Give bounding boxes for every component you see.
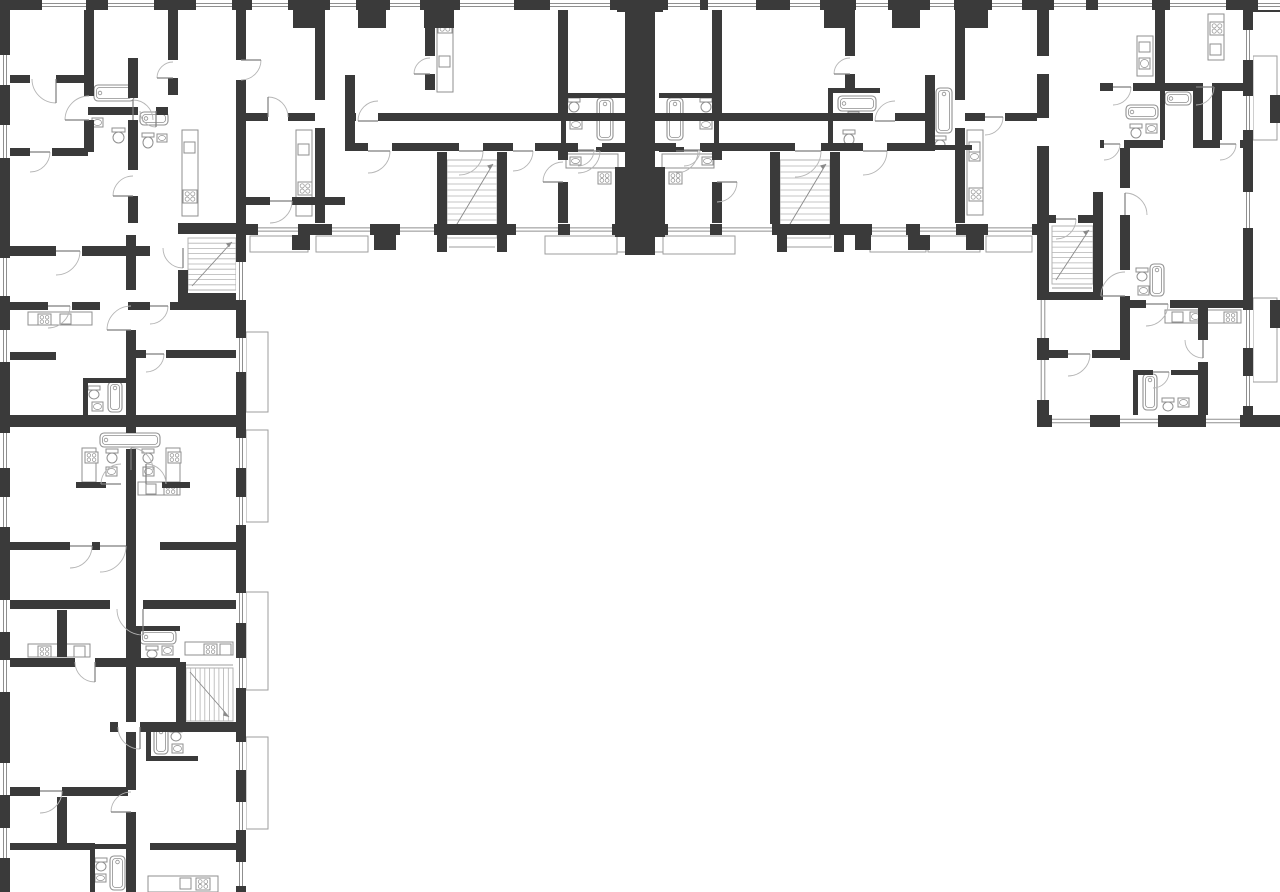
wall <box>483 143 513 151</box>
wall <box>1218 83 1253 91</box>
wall <box>236 128 246 223</box>
toilet-tank <box>843 130 855 134</box>
wall <box>1270 300 1280 328</box>
wall <box>1193 140 1220 148</box>
window-opening <box>1243 96 1253 130</box>
wall <box>892 0 920 28</box>
toilet-tank <box>934 136 946 140</box>
window-opening <box>920 224 956 235</box>
wall <box>236 80 246 128</box>
wall <box>10 302 48 310</box>
wall <box>126 492 136 560</box>
partition-wall <box>828 88 880 93</box>
wall <box>315 0 325 100</box>
window-opening <box>1243 310 1253 348</box>
wall <box>558 151 568 160</box>
wall <box>1124 140 1163 148</box>
stove <box>196 878 210 890</box>
appliance-square <box>220 644 231 655</box>
window-opening <box>0 330 10 362</box>
partition-wall <box>828 88 833 148</box>
wall <box>625 237 655 255</box>
appliance-square <box>74 646 85 657</box>
toilet-bowl <box>701 102 711 112</box>
wall <box>437 224 447 252</box>
wall <box>128 196 138 223</box>
wall <box>126 667 136 722</box>
partition-wall <box>83 378 88 415</box>
wall <box>1037 74 1049 118</box>
partition-wall <box>714 93 719 152</box>
window-opening <box>236 497 246 525</box>
wall <box>1198 308 1208 340</box>
wall <box>965 113 985 121</box>
toilet-tank <box>1136 268 1148 272</box>
window-opening <box>1170 0 1226 10</box>
stove <box>969 188 983 201</box>
floor-plan-drawing <box>0 0 1280 892</box>
wall <box>245 113 268 121</box>
wall <box>1120 300 1146 308</box>
window-opening <box>550 0 610 10</box>
wall <box>777 224 787 252</box>
wall <box>72 302 100 310</box>
window-opening <box>1098 0 1152 10</box>
wall <box>110 722 118 732</box>
wall <box>168 78 178 95</box>
wall <box>845 0 855 56</box>
partition-wall <box>930 145 972 150</box>
window-opening <box>1052 415 1090 427</box>
window-opening <box>390 0 420 10</box>
window-opening <box>790 0 820 10</box>
wall <box>292 235 310 250</box>
stove <box>1210 22 1224 35</box>
toilet-bowl <box>89 390 99 399</box>
stove <box>669 172 682 184</box>
window-opening <box>0 55 10 85</box>
wall <box>88 107 138 115</box>
window-opening <box>1243 192 1253 228</box>
window-opening <box>400 224 434 235</box>
wall <box>126 732 136 790</box>
wall <box>1049 350 1068 358</box>
window-opening <box>708 0 756 10</box>
toilet-bowl <box>1131 128 1141 138</box>
wall <box>84 120 94 152</box>
window-opening <box>1037 360 1049 400</box>
appliance-square <box>1139 42 1150 52</box>
window-opening <box>570 224 612 235</box>
wall <box>170 302 236 310</box>
wall <box>1005 113 1037 121</box>
partition-wall <box>1160 88 1165 140</box>
wall <box>126 560 136 658</box>
window-opening <box>0 258 10 296</box>
partition-wall <box>702 147 719 152</box>
window-opening <box>856 0 888 10</box>
toilet-tank <box>88 386 100 390</box>
window-opening <box>992 0 1022 10</box>
window-opening <box>236 593 246 623</box>
wall <box>1093 192 1103 292</box>
wall <box>126 427 136 433</box>
wall <box>128 302 150 310</box>
window-opening <box>252 0 288 10</box>
wall <box>1037 292 1103 300</box>
window-opening <box>236 438 246 468</box>
partition-wall <box>659 93 719 98</box>
partition-wall <box>561 93 625 98</box>
wall <box>92 542 100 550</box>
partition-wall <box>561 147 578 152</box>
wall <box>558 182 568 223</box>
stove <box>38 646 51 657</box>
partition-wall <box>146 756 198 761</box>
wall <box>0 843 95 850</box>
wall <box>617 0 663 12</box>
toilet-bowl <box>569 102 579 112</box>
window-opening <box>1258 0 1280 10</box>
wall <box>821 143 863 151</box>
wall <box>166 350 246 358</box>
partition-wall <box>930 85 935 150</box>
wall <box>1240 140 1253 148</box>
window-opening <box>668 224 710 235</box>
window-opening <box>236 862 246 886</box>
wall <box>908 235 930 250</box>
wall <box>0 415 246 427</box>
wall <box>955 0 965 100</box>
window-opening <box>332 224 370 235</box>
stove <box>298 182 312 195</box>
wall <box>126 235 136 290</box>
wall <box>236 197 270 205</box>
window-opening <box>930 0 954 10</box>
partition-wall <box>90 844 95 892</box>
wall <box>1049 215 1056 223</box>
floor-plan-canvas <box>0 0 1280 892</box>
stove <box>183 190 197 203</box>
wall <box>392 143 459 151</box>
wall <box>1120 148 1130 188</box>
window-opening <box>0 660 10 692</box>
wall <box>615 167 665 237</box>
wall <box>52 148 88 156</box>
window-opening <box>236 658 246 688</box>
window-opening <box>1037 300 1049 338</box>
window-opening <box>258 224 298 235</box>
wall <box>10 600 110 609</box>
window-opening <box>330 0 356 10</box>
window-opening <box>236 742 246 770</box>
wall <box>437 152 447 224</box>
window-opening <box>0 600 10 632</box>
wall <box>834 224 844 252</box>
wall <box>712 151 722 160</box>
wall <box>374 235 396 250</box>
stove <box>38 314 51 325</box>
window-opening <box>668 0 700 10</box>
toilet-bowl <box>96 862 106 871</box>
window-opening <box>236 802 246 830</box>
appliance-square <box>1172 312 1183 322</box>
wall <box>1120 215 1130 270</box>
window-opening <box>0 497 10 527</box>
partition-wall <box>90 844 136 849</box>
window-opening <box>42 0 86 10</box>
window-opening <box>0 125 10 158</box>
appliance-square <box>184 142 195 153</box>
window-opening <box>1054 0 1086 10</box>
partition-wall <box>146 724 151 760</box>
wall <box>425 0 435 56</box>
wall <box>955 128 965 223</box>
wall <box>57 610 67 657</box>
appliance-square <box>146 484 156 494</box>
wall <box>128 58 138 98</box>
wall <box>1155 0 1165 83</box>
toilet-tank <box>112 128 125 132</box>
toilet-bowl <box>1163 402 1173 411</box>
window-opening <box>1243 30 1253 60</box>
window-opening <box>516 224 558 235</box>
wall <box>178 223 246 234</box>
stove <box>598 172 611 184</box>
wall <box>1100 83 1113 91</box>
wall <box>82 246 150 256</box>
wall <box>143 600 236 609</box>
wall <box>0 542 70 550</box>
wall <box>830 152 840 224</box>
appliance-square <box>298 144 309 155</box>
window-opening <box>0 433 10 468</box>
window-opening <box>236 338 246 372</box>
wall <box>1270 95 1280 123</box>
toilet-tank <box>95 858 107 862</box>
wall <box>845 74 855 90</box>
wall <box>497 224 507 252</box>
wall <box>62 787 128 796</box>
stove <box>1224 312 1237 323</box>
toilet-bowl <box>113 132 124 143</box>
toilet-tank <box>568 98 580 102</box>
stove <box>204 644 217 655</box>
wall <box>1193 83 1203 140</box>
wall <box>345 143 368 151</box>
window-opening <box>196 0 232 10</box>
partition-wall <box>1133 370 1138 415</box>
wall <box>712 182 722 223</box>
wall <box>0 246 56 256</box>
wall <box>1092 350 1130 358</box>
window-opening <box>872 224 906 235</box>
wall <box>126 812 136 892</box>
wall <box>128 120 138 170</box>
partition-wall <box>83 378 133 383</box>
wall <box>168 0 178 60</box>
wall <box>315 128 325 223</box>
toilet-bowl <box>147 650 157 658</box>
wall <box>1170 300 1253 308</box>
window-opening <box>0 763 10 795</box>
wall <box>966 235 984 250</box>
wall <box>76 482 106 488</box>
wall <box>236 223 246 892</box>
toilet-tank <box>1130 124 1142 128</box>
stove <box>85 452 98 463</box>
toilet-bowl <box>143 137 153 148</box>
wall <box>140 722 236 732</box>
window-opening <box>988 224 1032 235</box>
window-opening <box>460 0 514 10</box>
toilet-bowl <box>1137 272 1147 281</box>
window-opening <box>722 224 772 235</box>
window-opening <box>1120 415 1158 427</box>
toilet-bowl <box>107 453 117 463</box>
window-opening <box>1206 415 1240 427</box>
wall <box>56 75 88 83</box>
toilet-tank <box>142 133 154 137</box>
wall <box>855 235 871 250</box>
toilet-tank <box>1162 398 1174 402</box>
window-opening <box>1243 376 1253 406</box>
toilet-tank <box>106 449 118 453</box>
wall <box>358 0 386 28</box>
wall <box>236 0 246 60</box>
wall <box>156 107 168 115</box>
appliance-square <box>180 878 191 889</box>
wall <box>57 797 67 843</box>
window-opening <box>0 828 10 858</box>
wall <box>770 152 780 224</box>
wall <box>95 658 180 667</box>
wall <box>1198 362 1208 415</box>
wall <box>345 113 356 121</box>
wall <box>0 658 75 667</box>
wall <box>176 662 186 722</box>
wall <box>150 843 236 850</box>
wall <box>378 113 873 121</box>
toilet-tank <box>700 98 712 102</box>
partition-wall <box>561 93 566 152</box>
appliance-square <box>439 56 450 67</box>
toilet-bowl <box>171 732 181 741</box>
wall <box>497 152 507 224</box>
wall <box>425 74 435 90</box>
wall <box>178 293 246 302</box>
wall <box>288 113 315 121</box>
wall <box>1037 0 1049 56</box>
stove <box>168 452 181 463</box>
wall <box>126 330 136 415</box>
window-opening <box>108 0 154 10</box>
window-opening <box>236 262 246 300</box>
wall <box>160 542 236 550</box>
toilet-tank <box>146 646 158 650</box>
appliance-square <box>1210 44 1221 55</box>
wall <box>1100 140 1104 148</box>
partition-wall <box>1171 370 1201 375</box>
